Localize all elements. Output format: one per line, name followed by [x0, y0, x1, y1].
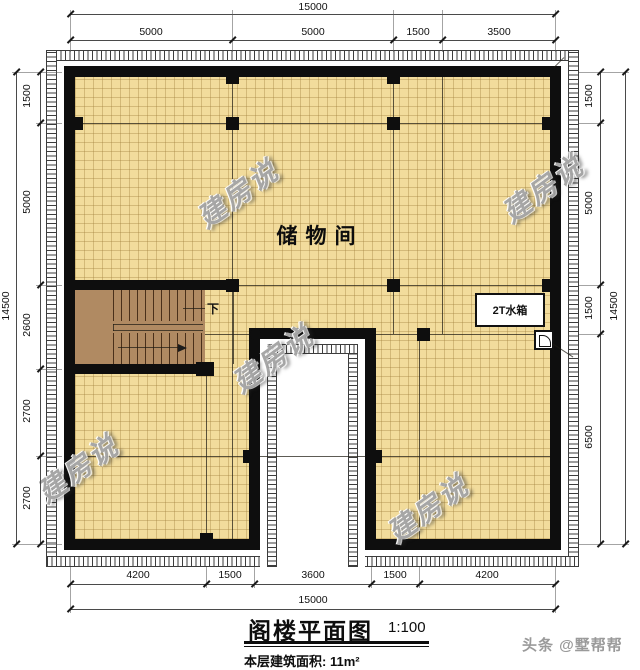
- wall-left: [64, 66, 75, 550]
- dim-label: 5000: [21, 180, 33, 224]
- void-wall-top: [249, 328, 376, 339]
- column: [196, 362, 214, 376]
- grid-line-v-10800: [419, 334, 420, 539]
- column-stub: [200, 533, 213, 539]
- dim-label: 1500: [406, 26, 429, 38]
- byline-watermark: 头条 @墅帮帮: [522, 634, 623, 655]
- grid-line-v-11500: [442, 77, 443, 334]
- dim-ext-line: [555, 10, 556, 52]
- dim-label: 1500: [21, 74, 33, 118]
- wall-top: [64, 66, 561, 77]
- dim-label: 4200: [475, 569, 498, 581]
- void-wall-left: [249, 328, 260, 550]
- column-stub: [226, 77, 239, 84]
- dim-ext-line: [232, 10, 233, 52]
- dim-line: [70, 584, 555, 585]
- floor-area-label: 本层建筑面积:: [244, 654, 326, 669]
- column-stub: [376, 450, 382, 463]
- dim-line: [70, 14, 555, 15]
- floor-plan-canvas: 下 储物间 2T水箱 建房说 建房说 建房说 建房说 建房说 15000: [0, 0, 640, 668]
- grid-line-h-1500: [75, 123, 550, 124]
- column: [226, 279, 239, 292]
- dim-ext-line: [442, 10, 443, 52]
- title-underline-thin: [244, 646, 429, 647]
- grid-line-v-10000: [393, 77, 394, 334]
- stair-rail-bottom: [113, 330, 203, 331]
- grid-line-h-8000-right: [376, 334, 550, 335]
- dim-label: 2700: [21, 476, 33, 520]
- dim-line: [625, 72, 626, 544]
- water-tank-box: 2T水箱: [475, 293, 545, 327]
- dim-label: 5000: [139, 26, 162, 38]
- dim-ext-line: [393, 10, 394, 52]
- dim-label: 5000: [583, 181, 595, 225]
- dim-label: 1500: [583, 286, 595, 330]
- column: [387, 279, 400, 292]
- wall-right: [550, 66, 561, 550]
- dim-label: 3600: [301, 569, 324, 581]
- dim-label: 14500: [0, 284, 12, 328]
- column: [417, 328, 430, 341]
- column: [226, 117, 239, 130]
- dim-ext-line: [70, 10, 71, 52]
- column-stub: [542, 279, 550, 292]
- dim-line: [16, 72, 17, 544]
- plan-scale: 1:100: [388, 619, 426, 636]
- column-stub: [542, 117, 550, 130]
- grid-line-h-8000-mid: [205, 334, 249, 335]
- parapet-left: [46, 50, 57, 567]
- parapet-top: [46, 50, 579, 61]
- dim-label: 2600: [21, 303, 33, 347]
- dim-label: 14500: [608, 284, 620, 328]
- room-label-storage: 储物间: [230, 220, 410, 250]
- dim-label: 15000: [298, 594, 327, 606]
- dim-line: [600, 72, 601, 544]
- stair-treads-lower: [113, 333, 205, 364]
- column-stub: [243, 450, 249, 463]
- column-dot: [250, 329, 261, 340]
- column-stub: [75, 117, 83, 130]
- wall-bottom-right: [365, 539, 561, 550]
- dim-label: 2700: [21, 389, 33, 433]
- stair-wall-top: [64, 280, 238, 290]
- dim-label: 1500: [383, 569, 406, 581]
- dim-label: 1500: [218, 569, 241, 581]
- floor-drain-glyph: [539, 335, 551, 347]
- parapet-bottom-left: [46, 556, 277, 567]
- grid-line-h-11800: [75, 456, 550, 457]
- dim-line: [70, 609, 555, 610]
- stair-rail-end: [113, 324, 114, 331]
- stair-treads-upper: [113, 290, 205, 321]
- floor-drain-icon: [534, 330, 554, 350]
- title-underline-thick: [244, 641, 429, 644]
- column-stub: [387, 77, 400, 84]
- wall-bottom-left: [64, 539, 260, 550]
- parapet-right: [568, 50, 579, 567]
- stair-wall-bottom: [64, 364, 214, 374]
- void-parapet-top: [267, 344, 358, 354]
- stair-direction-arrow: [178, 344, 187, 352]
- stair-label-leader: [183, 308, 205, 309]
- stair-rail-top: [113, 324, 203, 325]
- dim-label: 4200: [126, 569, 149, 581]
- column: [387, 117, 400, 130]
- dim-label: 5000: [301, 26, 324, 38]
- parapet-bottom-right: [348, 556, 579, 567]
- dim-label: 15000: [298, 1, 327, 13]
- dim-label: 6500: [583, 415, 595, 459]
- dim-line: [70, 40, 555, 41]
- dim-line: [40, 72, 41, 544]
- stair-direction-line: [118, 347, 180, 348]
- stairwell-edge-line: [233, 290, 234, 364]
- stair-down-label: 下: [207, 300, 219, 317]
- dim-label: 1500: [583, 74, 595, 118]
- floor-area-value: 11m²: [330, 654, 360, 669]
- dim-label: 3500: [487, 26, 510, 38]
- floor-area-text: 本层建筑面积: 11m²: [244, 651, 360, 670]
- void-wall-right: [365, 328, 376, 550]
